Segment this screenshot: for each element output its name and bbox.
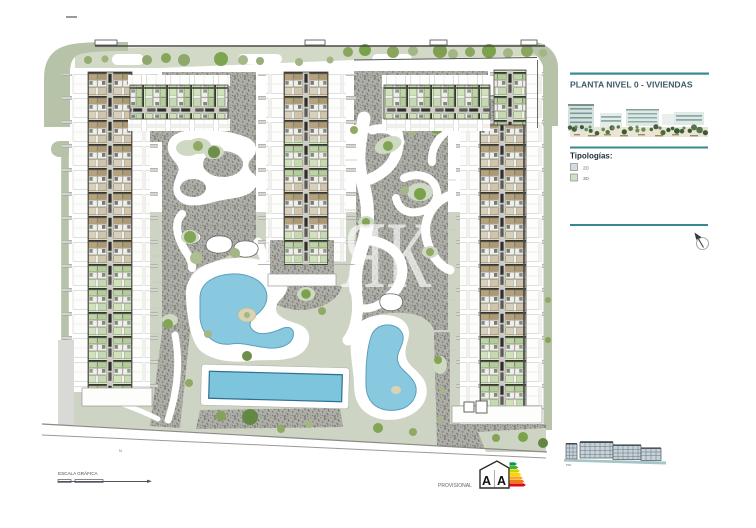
svg-text:PLANTA NIVEL 0 - VIVIENDAS: PLANTA NIVEL 0 - VIVIENDAS: [570, 80, 693, 90]
svg-text:Tipologías:: Tipologías:: [570, 152, 613, 161]
svg-text:A: A: [482, 474, 491, 488]
svg-text:ЯК: ЯК: [341, 202, 431, 308]
svg-text:A: A: [497, 474, 506, 488]
svg-text:esc: esc: [566, 463, 572, 467]
svg-text:PROVISIONAL: PROVISIONAL: [438, 483, 472, 489]
svg-text:ESCALA GRÁFICA: ESCALA GRÁFICA: [58, 470, 99, 476]
svg-text:N: N: [119, 448, 122, 453]
svg-text:3D: 3D: [583, 176, 590, 181]
svg-text:2D: 2D: [583, 166, 590, 171]
